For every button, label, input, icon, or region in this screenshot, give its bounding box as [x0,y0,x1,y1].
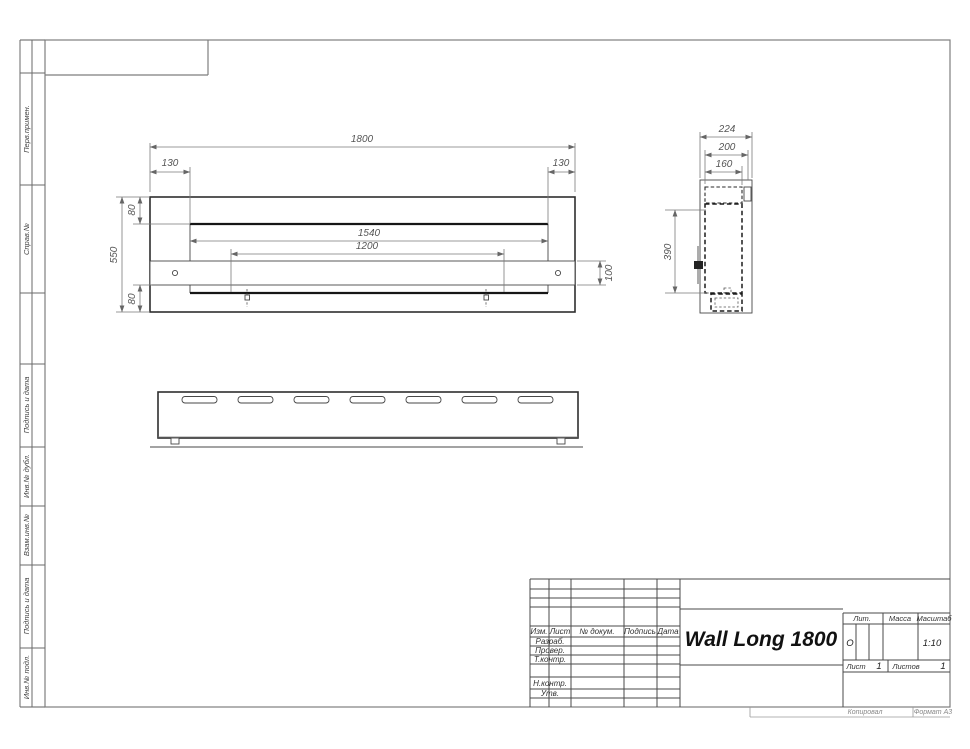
tb-scale-label: Масштаб [916,614,952,623]
tb-row-developed: Разраб. [536,637,565,646]
sidebar-label-vzam-inv: Взам.инв.№ [22,514,31,556]
front-hole-right [555,270,560,275]
tb-col-doc: № докум. [579,627,614,636]
tb-col-izm: Изм. [530,627,547,636]
footer-format-label: Формат А3 [914,709,952,716]
vent-slot [518,397,553,404]
tb-row-tcontrol: Т.контр. [534,655,566,664]
sidebar-label-inv-podl: Инв.№ подл. [22,655,31,699]
tb-lit-label: Лит. [852,614,871,623]
tb-row-ncontrol: Н.контр. [533,679,567,688]
tb-sheet-label: Лист [845,662,865,671]
vent-slot [294,397,329,404]
main-frame-border [45,40,950,707]
drawing-canvas: Перв.примен. Справ.№ Подпись и дата Инв.… [0,0,970,749]
footer-strip: Копировал Формат А3 [750,707,952,717]
tb-scale-value: 1:10 [923,638,942,649]
bottom-foot-right [557,438,565,444]
dim-label-1800: 1800 [351,134,374,145]
vent-slot [182,397,217,404]
front-shelf-band [150,261,575,285]
sheet-frame [20,40,950,707]
vent-slot [350,397,385,404]
bottom-foot-left [171,438,179,444]
tb-sheet-value: 1 [876,661,881,672]
footer-copied-label: Копировал [848,709,883,716]
dim-label-80-top: 80 [127,204,138,216]
dim-label-130-right: 130 [553,158,570,169]
tb-mass-label: Масса [889,614,911,623]
sidebar-label-perv-primen: Перв.примен. [22,105,31,153]
dim-label-224: 224 [718,124,736,135]
front-fastener-left [245,295,250,300]
tb-col-list: Лист [549,627,571,636]
bottom-view [150,392,583,447]
front-hole-left [172,270,177,275]
tb-row-checked: Провер. [535,646,565,655]
tb-col-sign: Подпись [624,627,656,636]
front-outer-body [150,197,575,312]
sidebar-label-sprav-no: Справ.№ [22,223,31,255]
dim-label-130-left: 130 [162,158,179,169]
vent-slot [462,397,497,404]
side-wall-bracket [694,261,703,269]
dim-label-100: 100 [604,264,615,281]
sidebar-label-podpis-data-1: Подпись и дата [22,377,31,434]
front-view [150,197,575,312]
tb-sheets-label: Листов [891,662,919,671]
sidebar-label-inv-dubl: Инв.№ дубл. [22,454,31,498]
dim-label-160: 160 [716,159,733,170]
dim-label-200: 200 [718,142,736,153]
tb-document-name: Wall Long 1800 [685,628,838,651]
tb-row-approved: Утв. [540,689,559,698]
sidebar-columns: Перв.примен. Справ.№ Подпись и дата Инв.… [20,40,45,707]
tb-lit-value: О [846,638,854,649]
side-top-right-block [744,187,751,201]
dim-label-1200: 1200 [356,241,379,252]
drawing-sheet: Перв.примен. Справ.№ Подпись и дата Инв.… [0,0,970,749]
vent-slot [406,397,441,404]
dim-label-390: 390 [663,243,674,260]
dim-label-550: 550 [109,246,120,263]
tb-col-date: Дата [656,627,679,636]
tb-sheets-value: 1 [940,661,945,672]
dim-label-1540: 1540 [358,228,381,239]
title-block: Изм. Лист № докум. Подпись Дата Разраб. … [530,579,952,707]
vent-slot [238,397,273,404]
designation-box-top-left [45,40,208,75]
front-fastener-right [484,295,489,300]
dim-label-80-bottom: 80 [127,293,138,305]
sidebar-label-podpis-data-2: Подпись и дата [22,578,31,635]
